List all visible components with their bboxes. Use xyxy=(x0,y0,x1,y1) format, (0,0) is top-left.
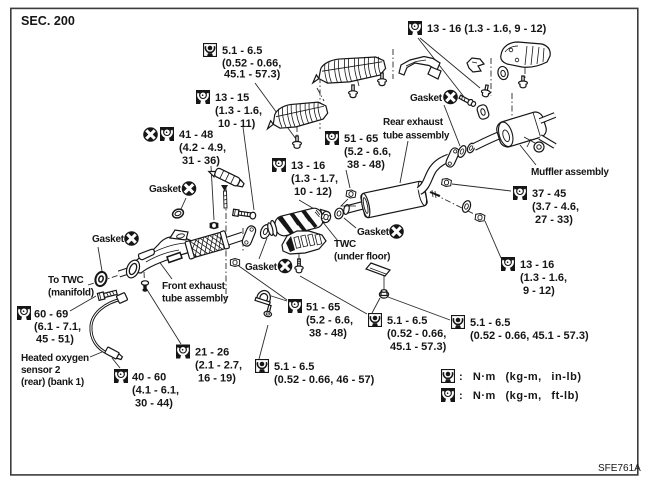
svg-text:Gasket: Gasket xyxy=(149,184,182,195)
svg-text:SFE761A: SFE761A xyxy=(598,463,641,474)
svg-text:13 - 16: 13 - 16 xyxy=(291,160,325,172)
svg-text:Front exhaust: Front exhaust xyxy=(162,281,226,292)
svg-text:21 - 26: 21 - 26 xyxy=(195,347,229,359)
svg-text:5.1 - 6.5: 5.1 - 6.5 xyxy=(470,317,510,329)
svg-text:(1.3 - 1.6,: (1.3 - 1.6, xyxy=(520,272,567,284)
svg-text:37 - 45: 37 - 45 xyxy=(532,188,566,200)
svg-text:13 - 15: 13 - 15 xyxy=(215,92,249,104)
svg-text:(manifold): (manifold) xyxy=(48,288,94,299)
svg-text:45.1 - 57.3): 45.1 - 57.3) xyxy=(390,341,447,353)
svg-text:To TWC: To TWC xyxy=(48,275,84,286)
svg-text:Heated oxygen: Heated oxygen xyxy=(21,353,89,364)
svg-text:51 - 65: 51 - 65 xyxy=(344,133,378,145)
svg-text:45.1 - 57.3): 45.1 - 57.3) xyxy=(224,69,281,81)
svg-text:TWC: TWC xyxy=(334,239,356,250)
svg-text:Gasket: Gasket xyxy=(92,234,125,245)
svg-text:31 - 36): 31 - 36) xyxy=(182,155,220,167)
svg-text:38 - 48): 38 - 48) xyxy=(309,328,347,340)
svg-text:(5.2 - 6.6,: (5.2 - 6.6, xyxy=(344,146,391,158)
svg-text:(0.52 - 0.66,: (0.52 - 0.66, xyxy=(387,328,446,340)
svg-text:: N·m (kg-m, in-lb): : N·m (kg-m, in-lb) xyxy=(459,371,582,383)
svg-text:(1.3 - 1.6,: (1.3 - 1.6, xyxy=(215,105,262,117)
svg-text:: N·m (kg-m, ft-lb): : N·m (kg-m, ft-lb) xyxy=(459,390,579,402)
svg-text:38 - 48): 38 - 48) xyxy=(347,159,385,171)
svg-text:13 - 16: 13 - 16 xyxy=(520,259,554,271)
svg-text:27 - 33): 27 - 33) xyxy=(535,214,573,226)
svg-text:51 - 65: 51 - 65 xyxy=(306,302,340,314)
svg-text:Gasket: Gasket xyxy=(410,93,443,104)
svg-text:tube assembly: tube assembly xyxy=(162,294,229,305)
svg-text:30 - 44): 30 - 44) xyxy=(135,398,173,410)
svg-text:41 - 48: 41 - 48 xyxy=(179,129,213,141)
svg-text:(4.1 - 6.1,: (4.1 - 6.1, xyxy=(132,385,179,397)
svg-text:40 - 60: 40 - 60 xyxy=(132,372,166,384)
svg-text:10 - 12): 10 - 12) xyxy=(294,186,332,198)
svg-text:(under floor): (under floor) xyxy=(334,252,390,263)
svg-text:(3.7 - 4.6,: (3.7 - 4.6, xyxy=(532,201,579,213)
svg-text:(rear) (bank 1): (rear) (bank 1) xyxy=(21,377,84,388)
svg-text:Rear exhaust: Rear exhaust xyxy=(383,117,444,128)
svg-text:SEC. 200: SEC. 200 xyxy=(21,14,75,28)
svg-text:tube assembly: tube assembly xyxy=(383,131,450,142)
svg-text:Muffler assembly: Muffler assembly xyxy=(531,167,609,178)
svg-text:5.1 - 6.5: 5.1 - 6.5 xyxy=(387,315,427,327)
svg-text:Gasket: Gasket xyxy=(357,227,390,238)
svg-text:sensor 2: sensor 2 xyxy=(21,365,61,376)
svg-text:13 - 16 (1.3 - 1.6, 9 -: 13 - 16 (1.3 - 1.6, 9 - 12) xyxy=(427,23,547,35)
svg-text:60 - 69: 60 - 69 xyxy=(34,309,68,321)
svg-text:(4.2 - 4.9,: (4.2 - 4.9, xyxy=(179,142,226,154)
svg-text:(0.52 - 0.66, 46 - 57): (0.52 - 0.66, 46 - 57) xyxy=(274,374,375,386)
svg-text:(2.1 - 2.7,: (2.1 - 2.7, xyxy=(195,360,242,372)
svg-text:5.1 - 6.5: 5.1 - 6.5 xyxy=(222,45,262,57)
svg-text:Gasket: Gasket xyxy=(245,262,278,273)
svg-text:10 - 11): 10 - 11) xyxy=(218,118,256,130)
svg-text:(6.1 - 7.1,: (6.1 - 7.1, xyxy=(34,321,81,333)
svg-text:9 - 12): 9 - 12) xyxy=(523,285,555,297)
svg-text:5.1 - 6.5: 5.1 - 6.5 xyxy=(274,361,314,373)
svg-text:(0.52 - 0.66, 45.1 - 57.3: (0.52 - 0.66, 45.1 - 57.3) xyxy=(470,330,589,342)
svg-text:(1.3 - 1.7,: (1.3 - 1.7, xyxy=(291,173,338,185)
svg-text:(5.2 - 6.6,: (5.2 - 6.6, xyxy=(306,315,353,327)
svg-text:45 - 51): 45 - 51) xyxy=(36,334,74,346)
svg-text:16 - 19): 16 - 19) xyxy=(198,373,236,385)
